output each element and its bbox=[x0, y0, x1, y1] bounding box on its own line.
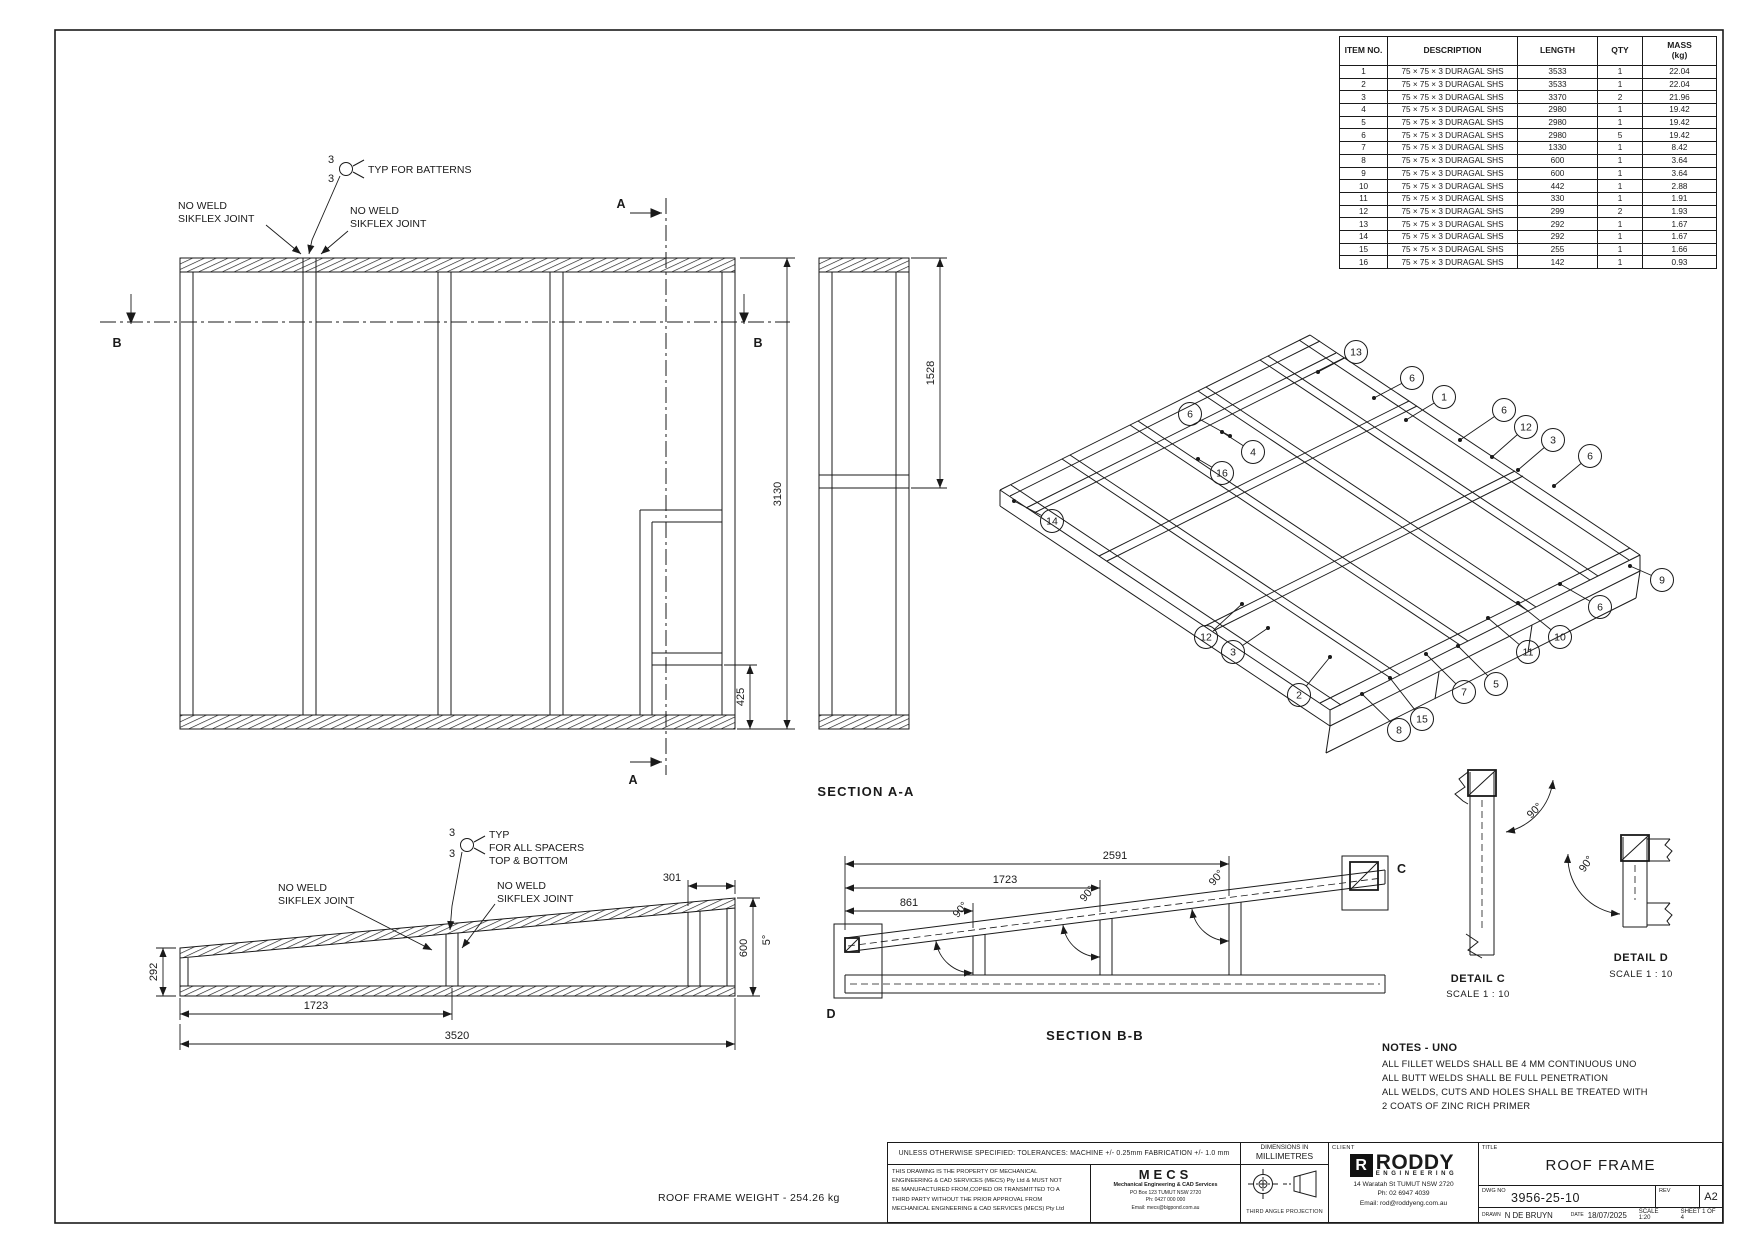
mecs-line: Mechanical Engineering & CAD Services bbox=[1091, 1182, 1240, 1190]
dim-3520: 3520 bbox=[180, 998, 735, 1050]
svg-text:7: 7 bbox=[1461, 687, 1467, 699]
weight-note: ROOF FRAME WEIGHT - 254.26 kg bbox=[658, 1192, 840, 1204]
svg-text:6: 6 bbox=[1187, 409, 1193, 421]
bom-row: 1675 × 75 × 3 DURAGAL SHS14210.93 bbox=[1340, 256, 1717, 269]
bom-row: 175 × 75 × 3 DURAGAL SHS3533122.04 bbox=[1340, 66, 1717, 79]
front-elevation-view: 3 3 TYP FOR BATTERNS NO WELD SIKFLEX JOI… bbox=[100, 154, 795, 787]
balloon-7: 7 bbox=[1424, 652, 1476, 704]
svg-text:9: 9 bbox=[1659, 575, 1665, 587]
svg-text:1723: 1723 bbox=[993, 874, 1017, 886]
dim-2591: 2591 bbox=[845, 850, 1229, 896]
drawn-row: DRAWN N DE BRUYN DATE 18/07/2025 SCALE 1… bbox=[1478, 1207, 1723, 1223]
svg-text:2591: 2591 bbox=[1103, 850, 1127, 862]
svg-text:5: 5 bbox=[1493, 679, 1499, 691]
svg-text:3520: 3520 bbox=[445, 1030, 469, 1042]
property-line: THIS DRAWING IS THE PROPERTY OF MECHANIC… bbox=[892, 1168, 1086, 1177]
balloon-6: 6 bbox=[1552, 445, 1602, 489]
svg-text:TYP: TYP bbox=[489, 829, 509, 841]
svg-text:3: 3 bbox=[328, 173, 334, 185]
svg-text:NO WELD: NO WELD bbox=[278, 882, 327, 894]
note-line: ALL FILLET WELDS SHALL BE 4 MM CONTINUOU… bbox=[1382, 1057, 1682, 1071]
note-line: 2 COATS OF ZINC RICH PRIMER bbox=[1382, 1099, 1682, 1113]
svg-text:4: 4 bbox=[1250, 447, 1256, 459]
detail-d-title: DETAIL D bbox=[1614, 952, 1669, 964]
notes-title: NOTES - UNO bbox=[1382, 1042, 1682, 1054]
svg-text:16: 16 bbox=[1216, 468, 1228, 480]
client-line: 14 Waratah St TUMUT NSW 2720 bbox=[1329, 1180, 1478, 1189]
notes-block: NOTES - UNO ALL FILLET WELDS SHALL BE 4 … bbox=[1382, 1042, 1682, 1113]
note-line: ALL BUTT WELDS SHALL BE FULL PENETRATION bbox=[1382, 1071, 1682, 1085]
bom-header-cell: ITEM NO. bbox=[1340, 37, 1388, 66]
bom-table: ITEM NO.DESCRIPTIONLENGTHQTYMASS (kg) 17… bbox=[1339, 36, 1716, 269]
bom-header-row: ITEM NO.DESCRIPTIONLENGTHQTYMASS (kg) bbox=[1340, 37, 1717, 66]
svg-text:SCALE 1 : 10: SCALE 1 : 10 bbox=[1446, 989, 1510, 1000]
drawn-date: 18/07/2025 bbox=[1588, 1211, 1627, 1220]
mark-b-right: B bbox=[753, 336, 762, 350]
bom-header-cell: DESCRIPTION bbox=[1388, 37, 1518, 66]
svg-text:15: 15 bbox=[1416, 714, 1428, 726]
bom-row: 975 × 75 × 3 DURAGAL SHS60013.64 bbox=[1340, 167, 1717, 180]
bottom-chord-hatch bbox=[180, 715, 735, 729]
svg-text:NO WELD: NO WELD bbox=[497, 880, 546, 892]
svg-text:1723: 1723 bbox=[304, 1000, 328, 1012]
mark-c: C bbox=[1397, 862, 1406, 876]
bom-header-cell: QTY bbox=[1598, 37, 1643, 66]
logo-r-icon: R bbox=[1350, 1154, 1373, 1177]
title-cell: TITLE ROOF FRAME bbox=[1478, 1142, 1723, 1186]
detail-c-title: DETAIL C bbox=[1451, 973, 1506, 985]
svg-text:90°: 90° bbox=[1577, 854, 1596, 875]
detail-d-boundary bbox=[834, 924, 882, 998]
svg-text:3: 3 bbox=[449, 827, 455, 839]
svg-text:861: 861 bbox=[900, 897, 918, 909]
mecs-line: PO Box 123 TUMUT NSW 2720 bbox=[1091, 1190, 1240, 1198]
tolerances-cell: UNLESS OTHERWISE SPECIFIED: TOLERANCES: … bbox=[887, 1142, 1241, 1165]
dim-1723-bb: 1723 bbox=[845, 874, 1100, 912]
balloon-1: 1 bbox=[1404, 386, 1456, 423]
drawn-by: N DE BRUYN bbox=[1505, 1211, 1553, 1220]
bom-row: 1575 × 75 × 3 DURAGAL SHS25511.66 bbox=[1340, 243, 1717, 256]
dim-5deg: 5° bbox=[761, 935, 773, 946]
mark-a-bottom: A bbox=[628, 773, 637, 787]
property-line: ENGINEERING & CAD SERVICES (MECS) Pty Lt… bbox=[892, 1177, 1086, 1186]
balloon-3: 3 bbox=[1516, 429, 1565, 473]
bom-row: 1175 × 75 × 3 DURAGAL SHS33011.91 bbox=[1340, 192, 1717, 205]
svg-text:FOR ALL SPACERS: FOR ALL SPACERS bbox=[489, 842, 584, 854]
mecs-name: MECS bbox=[1091, 1167, 1240, 1182]
dim-600: 600 bbox=[737, 898, 760, 996]
svg-text:SIKFLEX JOINT: SIKFLEX JOINT bbox=[350, 218, 427, 230]
detail-d-view: 90° DETAIL D SCALE 1 : 10 bbox=[1568, 835, 1673, 980]
svg-text:SIKFLEX JOINT: SIKFLEX JOINT bbox=[497, 893, 574, 905]
detail-c-boundary bbox=[1342, 856, 1388, 910]
roddy-logo: R RODDY ENGINEERING bbox=[1329, 1154, 1478, 1177]
dimensions-note-cell: DIMENSIONS IN MILLIMETRES bbox=[1240, 1142, 1329, 1165]
weld-size: 3 bbox=[328, 154, 334, 166]
svg-text:12: 12 bbox=[1200, 632, 1212, 644]
sheet-size: A2 bbox=[1699, 1185, 1723, 1208]
svg-text:NO WELD: NO WELD bbox=[178, 200, 227, 212]
weld-callout-batterns: 3 3 TYP FOR BATTERNS bbox=[309, 154, 471, 254]
balloon-6: 6 bbox=[1372, 367, 1424, 401]
isometric-view: 136161236641614961011571582312 bbox=[1000, 335, 1674, 753]
projection-cell: THIRD ANGLE PROJECTION bbox=[1240, 1164, 1329, 1223]
svg-text:425: 425 bbox=[735, 688, 747, 706]
svg-text:13: 13 bbox=[1350, 347, 1362, 359]
balloon-12: 12 bbox=[1490, 416, 1538, 460]
section-bb-view: 90° 90° 90° 861 1723 2591 C D SECTION B-… bbox=[826, 850, 1406, 1043]
balloon-8: 8 bbox=[1360, 692, 1411, 742]
dwg-no: 3956-25-10 bbox=[1511, 1191, 1655, 1205]
balloon-2: 2 bbox=[1288, 655, 1333, 707]
svg-text:14: 14 bbox=[1046, 516, 1058, 528]
svg-text:3130: 3130 bbox=[772, 482, 784, 506]
no-weld-label-2: NO WELD SIKFLEX JOINT bbox=[321, 205, 427, 254]
svg-text:90°: 90° bbox=[1207, 868, 1227, 888]
mecs-cell: MECS Mechanical Engineering & CAD Servic… bbox=[1090, 1164, 1241, 1223]
weld-all-round-icon bbox=[340, 163, 353, 176]
mecs-line: Ph: 0427 000 000 bbox=[1091, 1197, 1240, 1205]
typ-batterns-label: TYP FOR BATTERNS bbox=[368, 164, 471, 176]
bom-row: 275 × 75 × 3 DURAGAL SHS3533122.04 bbox=[1340, 78, 1717, 91]
svg-text:SCALE 1 : 10: SCALE 1 : 10 bbox=[1609, 969, 1673, 980]
svg-text:90°: 90° bbox=[951, 900, 971, 920]
balloon-4: 4 bbox=[1220, 430, 1265, 464]
property-note-cell: THIS DRAWING IS THE PROPERTY OF MECHANIC… bbox=[887, 1164, 1091, 1223]
svg-text:301: 301 bbox=[663, 872, 681, 884]
title-block: UNLESS OTHERWISE SPECIFIED: TOLERANCES: … bbox=[887, 1142, 1723, 1223]
client-line: Email: rod@roddyeng.com.au bbox=[1329, 1199, 1478, 1208]
client-line: Ph: 02 6947 4039 bbox=[1329, 1189, 1478, 1198]
bom-row: 875 × 75 × 3 DURAGAL SHS60013.64 bbox=[1340, 154, 1717, 167]
balloon-3: 3 bbox=[1222, 626, 1271, 664]
section-aa-view: 1528 SECTION A-A bbox=[817, 258, 947, 799]
svg-text:6: 6 bbox=[1501, 405, 1507, 417]
svg-text:292: 292 bbox=[148, 963, 160, 981]
bom-row: 575 × 75 × 3 DURAGAL SHS2980119.42 bbox=[1340, 116, 1717, 129]
balloon-callouts: 136161236641614961011571582312 bbox=[1012, 341, 1674, 742]
balloon-6: 6 bbox=[1558, 582, 1612, 619]
weld-all-round-icon bbox=[461, 839, 474, 852]
mark-a-top: A bbox=[616, 197, 625, 211]
bom-row: 1275 × 75 × 3 DURAGAL SHS29921.93 bbox=[1340, 205, 1717, 218]
svg-text:NO WELD: NO WELD bbox=[350, 205, 399, 217]
property-line: THIRD PARTY WITHOUT THE PRIOR APPROVAL F… bbox=[892, 1196, 1086, 1205]
svg-text:11: 11 bbox=[1523, 647, 1534, 659]
balloon-9: 9 bbox=[1628, 564, 1674, 592]
svg-text:SIKFLEX JOINT: SIKFLEX JOINT bbox=[278, 895, 355, 907]
balloon-6: 6 bbox=[1458, 399, 1516, 443]
sheet-note: SHEET 1 OF 4 bbox=[1681, 1209, 1719, 1221]
third-angle-projection-icon bbox=[1241, 1165, 1328, 1203]
property-line: MECHANICAL ENGINEERING & CAD SERVICES (M… bbox=[892, 1205, 1086, 1214]
mark-d: D bbox=[826, 1007, 835, 1021]
svg-text:6: 6 bbox=[1409, 373, 1415, 385]
balloon-15: 15 bbox=[1388, 676, 1434, 731]
dim-1528: 1528 bbox=[911, 258, 947, 488]
svg-text:1: 1 bbox=[1441, 392, 1447, 404]
section-aa-title: SECTION A-A bbox=[817, 784, 914, 799]
dim-3130: 3130 bbox=[740, 258, 795, 729]
svg-text:8: 8 bbox=[1396, 725, 1402, 737]
svg-text:6: 6 bbox=[1587, 451, 1593, 463]
bom-row: 1475 × 75 × 3 DURAGAL SHS29211.67 bbox=[1340, 230, 1717, 243]
rev-cell: REV bbox=[1655, 1185, 1700, 1208]
section-bb-title: SECTION B-B bbox=[1046, 1028, 1144, 1043]
mark-b-left: B bbox=[112, 336, 121, 350]
bom-row: 1375 × 75 × 3 DURAGAL SHS29211.67 bbox=[1340, 218, 1717, 231]
dim-292: 292 bbox=[148, 948, 176, 996]
bom-row: 675 × 75 × 3 DURAGAL SHS2980519.42 bbox=[1340, 129, 1717, 142]
section-a-cut-line: A A bbox=[616, 197, 666, 787]
profile-view: 3 3 TYP FOR ALL SPACERS TOP & BOTTOM NO … bbox=[148, 827, 773, 1050]
dwg-no-cell: DWG NO 3956-25-10 bbox=[1478, 1185, 1656, 1208]
svg-text:3: 3 bbox=[1230, 647, 1236, 659]
svg-text:12: 12 bbox=[1520, 422, 1532, 434]
svg-text:600: 600 bbox=[738, 939, 750, 957]
property-line: BE MANUFACTURED FROM,COPIED OR TRANSMITT… bbox=[892, 1186, 1086, 1195]
svg-text:3: 3 bbox=[449, 848, 455, 860]
bom-row: 375 × 75 × 3 DURAGAL SHS3370221.96 bbox=[1340, 91, 1717, 104]
svg-text:2: 2 bbox=[1296, 690, 1302, 702]
bom-row: 1075 × 75 × 3 DURAGAL SHS44212.88 bbox=[1340, 180, 1717, 193]
bom-header-cell: MASS (kg) bbox=[1643, 37, 1717, 66]
svg-text:90°: 90° bbox=[1078, 884, 1098, 904]
svg-text:6: 6 bbox=[1597, 602, 1603, 614]
scale-note: SCALE 1:20 bbox=[1639, 1209, 1671, 1221]
svg-text:90°: 90° bbox=[1525, 801, 1545, 821]
profile-bottom-chord bbox=[180, 986, 735, 996]
note-line: ALL WELDS, CUTS AND HOLES SHALL BE TREAT… bbox=[1382, 1085, 1682, 1099]
svg-text:SIKFLEX JOINT: SIKFLEX JOINT bbox=[178, 213, 255, 225]
top-chord-hatch bbox=[180, 258, 735, 272]
bom-row: 475 × 75 × 3 DURAGAL SHS2980119.42 bbox=[1340, 104, 1717, 117]
bom-row: 775 × 75 × 3 DURAGAL SHS133018.42 bbox=[1340, 142, 1717, 155]
client-cell: CLIENT R RODDY ENGINEERING 14 Waratah St… bbox=[1328, 1142, 1479, 1223]
svg-text:3: 3 bbox=[1550, 435, 1556, 447]
svg-text:TOP & BOTTOM: TOP & BOTTOM bbox=[489, 855, 568, 867]
balloon-11: 11 bbox=[1486, 616, 1540, 664]
drawing-sheet: 3 3 TYP FOR BATTERNS NO WELD SIKFLEX JOI… bbox=[0, 0, 1753, 1240]
bom-header-cell: LENGTH bbox=[1518, 37, 1598, 66]
mecs-line: Email: mecs@bigpond.com.au bbox=[1091, 1205, 1240, 1213]
drawing-title: ROOF FRAME bbox=[1479, 1157, 1722, 1174]
svg-text:1528: 1528 bbox=[925, 361, 937, 385]
detail-c-view: 90° DETAIL C SCALE 1 : 10 bbox=[1446, 770, 1553, 1000]
section-b-cut-line: B B bbox=[100, 294, 790, 350]
no-weld-label-1: NO WELD SIKFLEX JOINT bbox=[178, 200, 301, 254]
svg-text:10: 10 bbox=[1554, 632, 1566, 644]
